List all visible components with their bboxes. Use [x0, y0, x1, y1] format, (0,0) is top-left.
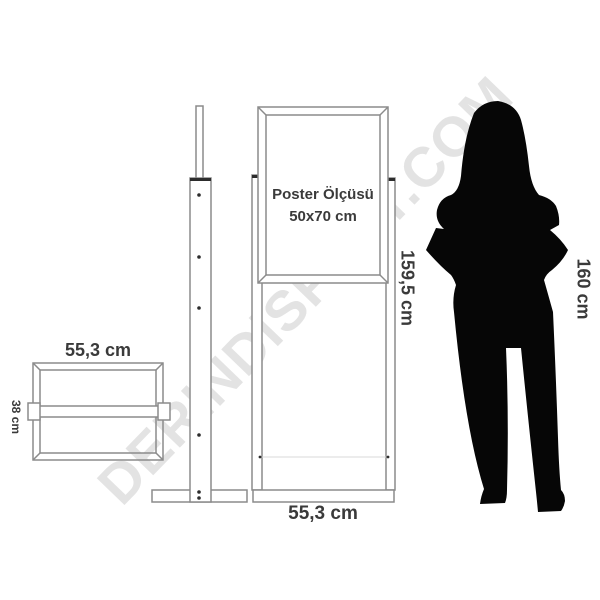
side-pole — [190, 178, 211, 502]
leg-screw — [259, 456, 262, 459]
poster-size-title: Poster Ölçüsü — [258, 184, 388, 206]
cross-bar-left-cap — [28, 403, 40, 420]
stand-front-view-drawing — [245, 100, 405, 510]
person-height-label: 160 cm — [573, 258, 594, 319]
front-base — [253, 490, 394, 502]
woman-silhouette — [418, 98, 578, 518]
stand-side-view-drawing — [150, 104, 250, 504]
side-pole-cap — [190, 178, 211, 181]
miter-corner — [33, 453, 40, 460]
side-top-rod — [196, 106, 203, 180]
base-width-label: 55,3 cm — [48, 340, 148, 361]
base-cross-bar — [28, 403, 170, 420]
cross-bar — [33, 406, 163, 417]
leg-screw — [387, 456, 390, 459]
woman-silhouette-shape — [426, 101, 568, 512]
poster-size-value: 50x70 cm — [258, 206, 388, 228]
miter-corner — [33, 363, 40, 370]
front-width-label: 55,3 cm — [263, 503, 383, 525]
poster-size-text: Poster Ölçüsü 50x70 cm — [258, 184, 388, 228]
base-depth-label: 38 cm — [9, 400, 23, 434]
diagram-canvas: DERINDiSPLAY.COM 55,3 cm 38 cm — [0, 0, 600, 600]
stand-height-label: 159,5 cm — [397, 250, 418, 326]
